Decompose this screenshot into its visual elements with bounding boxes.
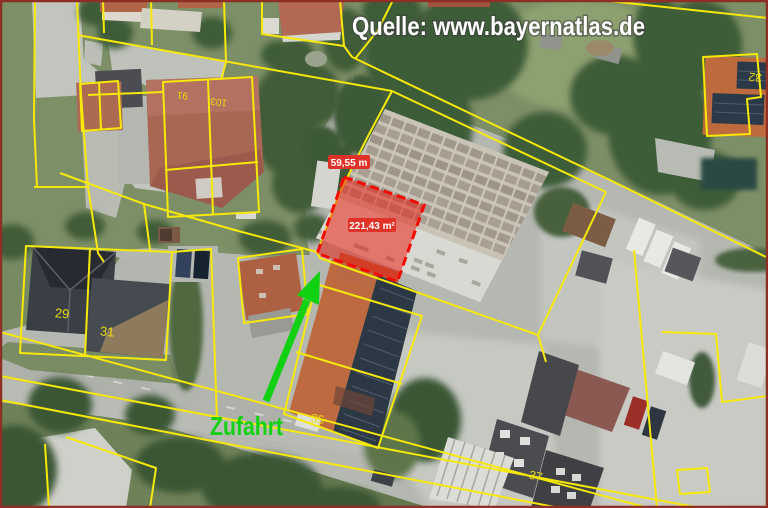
svg-text:Quelle: www.bayernatlas.de: Quelle: www.bayernatlas.de bbox=[352, 11, 645, 41]
svg-text:29: 29 bbox=[54, 305, 70, 321]
svg-text:91: 91 bbox=[176, 89, 189, 101]
svg-text:59,55 m: 59,55 m bbox=[331, 158, 368, 169]
svg-text:221,43 m²: 221,43 m² bbox=[349, 221, 395, 232]
svg-text:32: 32 bbox=[748, 69, 763, 85]
svg-text:Zufahrt: Zufahrt bbox=[210, 411, 283, 441]
svg-text:103: 103 bbox=[209, 95, 227, 108]
svg-text:31: 31 bbox=[99, 323, 115, 339]
